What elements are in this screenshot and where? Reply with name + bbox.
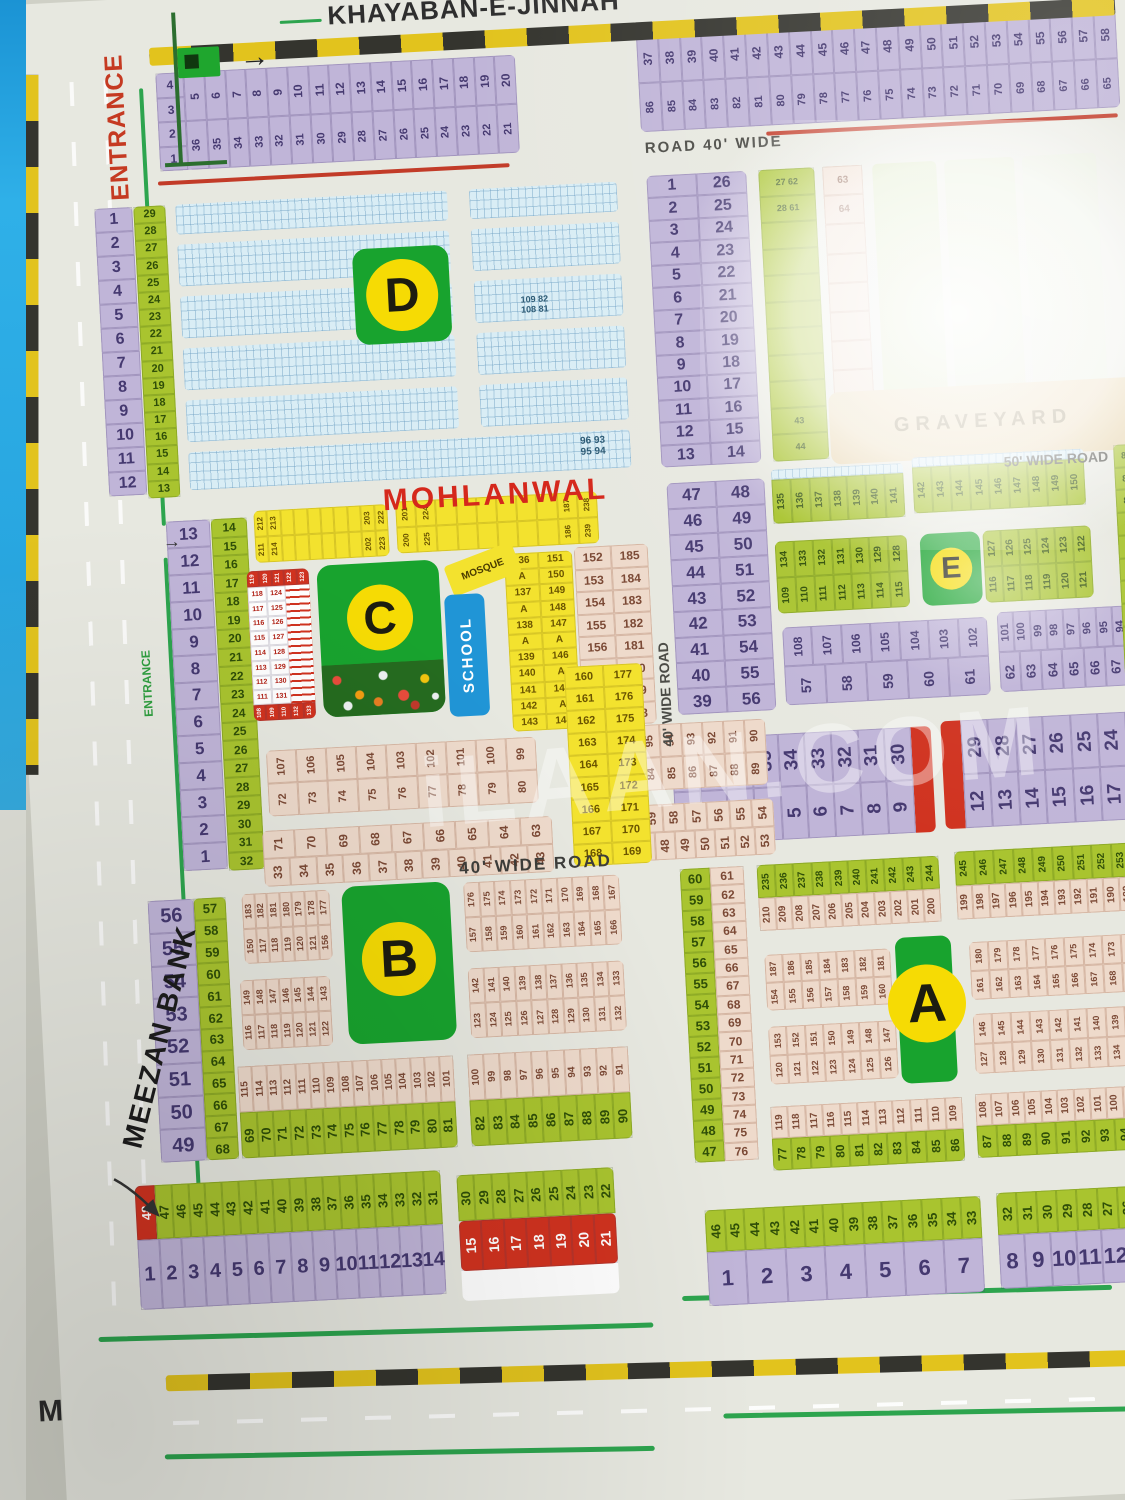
plot-number: 39: [679, 31, 703, 81]
plot-number: 63: [712, 903, 747, 923]
plot-number: 84: [906, 1131, 927, 1164]
plot-number: 7: [174, 681, 219, 710]
school-label: SCHOOL: [457, 617, 478, 694]
plot-number: 26: [1042, 715, 1072, 770]
plot-number: 121: [271, 570, 284, 587]
block-e-badge: E: [919, 531, 983, 606]
plot-number: 143: [931, 466, 952, 513]
plot-number: 4: [650, 241, 701, 266]
plot-number: 159: [856, 977, 875, 1006]
plot-number: 31: [423, 1170, 443, 1225]
d-plot-grid-row: [185, 386, 459, 442]
plot-number: 47: [694, 1140, 725, 1163]
d-plot-grid-row: [476, 325, 626, 375]
plot-number: 125: [1018, 528, 1038, 565]
plot-number: 25: [1070, 713, 1100, 768]
housing-scheme-map: ENTRANCE → KHAYABAN-E-JINNAH ROAD 4321 5…: [0, 0, 1125, 1500]
plot-number: 46: [668, 507, 718, 535]
plot-number: 3: [97, 255, 136, 281]
plot-number: 88: [1120, 580, 1125, 604]
plot-number: 49: [692, 1098, 723, 1121]
plot-number: 117: [805, 1104, 824, 1137]
plot-number: 3: [180, 788, 225, 817]
plot-number: 109: [266, 704, 279, 721]
plot-number: 129: [270, 659, 290, 675]
plot-number: 133: [608, 960, 625, 996]
plot-number: 210: [758, 897, 776, 931]
plot-number: 146: [973, 1013, 994, 1044]
plot-number: 242: [884, 858, 904, 892]
plot-number: 65: [1096, 58, 1120, 108]
plot-number: 60: [197, 962, 230, 985]
plot-number: 56: [706, 801, 730, 830]
plot-number: 115: [840, 1102, 859, 1135]
plot-number: 76: [856, 71, 880, 121]
b-block-top-left: 183182181180179178177 150117118119120121…: [241, 890, 333, 965]
plot-number: 145: [992, 1012, 1013, 1043]
plot-number: [281, 535, 296, 562]
plot-number: 48: [693, 1119, 724, 1142]
plot-number: 110: [927, 1098, 946, 1131]
plot-number: A: [542, 631, 577, 649]
plot-number: 86: [944, 1129, 965, 1162]
c-lower-left-upper: 10710610510410310210110099 7273747576777…: [266, 737, 539, 817]
d-right-plot-table: 1262253244235226217208199181017111612151…: [646, 171, 761, 468]
plot-number: 33: [248, 117, 271, 167]
plot-number: 6: [176, 708, 221, 737]
plot-number: 78: [813, 73, 837, 123]
plot-number: 10: [106, 423, 145, 449]
e-plot-table: 474846494550445143524253415440553956: [666, 478, 776, 715]
plot-number: 127: [982, 530, 1002, 567]
plot-number: 71: [262, 829, 296, 859]
plot-number: 16: [411, 59, 434, 109]
plot-number: 113: [251, 660, 271, 676]
plot-number: 238: [811, 861, 831, 895]
plot-number: 103: [928, 618, 959, 658]
plot-number: 63: [822, 165, 863, 196]
plot-number: 125: [861, 1050, 881, 1080]
plot-number: 108: [975, 1093, 993, 1126]
plot-number: 133: [303, 702, 316, 719]
plot-number: 18: [706, 350, 757, 375]
plot-number: 49: [717, 504, 767, 532]
plot-number: 45: [724, 1208, 746, 1251]
plot-number: 126: [879, 1049, 899, 1079]
plot-number: 29: [331, 112, 354, 162]
plot-number: 76: [387, 776, 419, 811]
plot-number: 92: [1075, 1120, 1096, 1153]
plot-number: 203: [360, 505, 375, 532]
plot-number: 208: [791, 896, 809, 930]
plot-number: 84: [1115, 489, 1125, 513]
plot-number: 108: [782, 626, 813, 666]
plot-number: 78: [791, 1137, 812, 1170]
plot-number: 51: [941, 17, 965, 67]
plot-number: 140: [866, 474, 887, 519]
plot-number: 92: [702, 721, 725, 755]
plot-number: 125: [267, 600, 287, 616]
plot-number: 187: [764, 954, 783, 983]
plot-number: 65: [203, 1071, 236, 1094]
plot-number: 201: [907, 889, 925, 923]
plot-number: 163: [1008, 968, 1028, 998]
plot-number: 60: [680, 868, 711, 891]
plot-number: 127: [532, 999, 549, 1035]
plot-number: 86: [682, 755, 705, 789]
plot-number: 184: [818, 951, 837, 980]
plot-number: 80: [829, 1135, 850, 1168]
plot-number: 107: [991, 1092, 1009, 1125]
plot-number: 2: [96, 231, 135, 257]
plot-number: 82: [469, 1100, 489, 1147]
plot-number: 27: [223, 758, 260, 778]
plot-number: 105: [326, 746, 358, 781]
plot-number: 72: [720, 1068, 755, 1088]
b-block-mid-right: 142141140139138137136135134133 123124125…: [468, 960, 627, 1038]
plot-number: 58: [662, 803, 686, 832]
plot-number: 117: [1002, 565, 1022, 602]
plot-number: 15: [212, 536, 249, 556]
plot-number: 42: [673, 610, 723, 638]
plot-number: 1: [707, 1250, 749, 1306]
plot-number: 21: [217, 647, 254, 667]
plot-number: A: [508, 633, 543, 651]
plot-number: 52: [735, 827, 756, 856]
plot-number: 34: [777, 733, 806, 787]
plot-number: 66: [1074, 59, 1098, 109]
plot-number: [766, 326, 823, 355]
plot-number: 91: [612, 1046, 630, 1093]
plot-number: 120: [1056, 562, 1076, 599]
plot-number: 16: [708, 395, 759, 420]
plot-number: 196: [1005, 882, 1023, 917]
plot-number: 82: [1113, 444, 1125, 468]
plot-number: 51: [690, 1056, 721, 1079]
plot-number: 21: [702, 283, 753, 308]
plot-number: 121: [1074, 561, 1094, 598]
plot-number: 8: [103, 375, 142, 401]
plot-number: 28: [224, 776, 261, 796]
plot-number: 193: [1054, 880, 1072, 915]
plot-number: 94: [1114, 1118, 1125, 1151]
plot-number: [308, 534, 323, 561]
plot-number: 79: [810, 1136, 831, 1169]
plot-number: 209: [775, 896, 793, 930]
plot-number: 96: [1079, 607, 1098, 648]
plot-number: 9: [887, 780, 916, 834]
plot-number: 5: [780, 785, 809, 839]
plot-number: 153: [768, 1026, 788, 1056]
plot-number: 112: [833, 574, 854, 611]
e-purple-strip-left: 108107106105104103102 5758596061: [782, 617, 991, 706]
plot-number: 155: [784, 981, 803, 1010]
plot-number: 212: [253, 510, 268, 537]
plot-number: 124: [266, 585, 286, 601]
plot-number: 161: [527, 913, 544, 949]
plot-number: 27: [372, 110, 395, 160]
block-d-badge: D: [352, 245, 453, 346]
plot-number: 41: [723, 29, 747, 79]
plot-number: 43: [771, 406, 828, 435]
plot-number: 164: [1027, 967, 1047, 997]
bottom-green-line-1: [98, 1322, 653, 1342]
plot-number: 16: [213, 554, 250, 574]
plot-number: 133: [1088, 1037, 1109, 1068]
plot-number: 32: [996, 1192, 1018, 1235]
plot-pair-row: 3956: [677, 684, 776, 715]
a-top-strip-right: 245246247248249250251252253254 199198197…: [954, 842, 1125, 920]
plot-number: 118: [788, 1105, 807, 1138]
plot-number: 31: [289, 115, 312, 165]
plot-number: 141: [483, 967, 500, 1003]
plot-number: 83: [1114, 466, 1125, 490]
plot-number: 152: [786, 1025, 806, 1055]
plot-number: 11: [658, 398, 709, 423]
plot-number: 24: [220, 702, 257, 722]
plot-number: 139: [509, 649, 544, 667]
plot-number: 119: [770, 1106, 789, 1139]
d-plot-grid-row: [183, 334, 457, 390]
plot-number: 29: [133, 205, 166, 224]
plot-number: 172: [609, 774, 649, 798]
plot-number: 154: [766, 982, 785, 1011]
plot-number: 17: [144, 411, 177, 430]
plot-number: 131: [831, 538, 852, 575]
plot-number: 40: [676, 661, 726, 689]
plot-number: 49: [675, 830, 696, 859]
plot-number: 64: [201, 1050, 234, 1073]
plot-number: 8: [173, 654, 218, 683]
plot-number: 125: [501, 1001, 518, 1037]
plot-number: 71: [719, 1049, 754, 1069]
plot-number: 15: [146, 445, 179, 464]
plot-number: 55: [725, 658, 775, 686]
plot-number: 30: [884, 727, 913, 781]
e-block-right: 127126125124123122 116117118119120121: [982, 525, 1094, 603]
plot-number: 69: [717, 1013, 752, 1033]
plot-number: 9: [104, 399, 143, 425]
plot-number: 33: [961, 1196, 983, 1239]
plot-number: 64: [1041, 649, 1064, 690]
plot-number: 52: [688, 1035, 719, 1058]
plot-number: 99: [1029, 610, 1048, 651]
plot-number: 41: [803, 1204, 825, 1247]
plot-number: 245: [954, 851, 975, 886]
plot-number: 64: [824, 194, 865, 225]
plot-number: 30: [1036, 1190, 1058, 1233]
graveyard-label: GRAVEYARD: [893, 405, 1072, 437]
plot-number: 16: [145, 428, 178, 447]
plot-number: 24: [1097, 712, 1125, 767]
plot-number: 158: [838, 978, 857, 1007]
plot-number: 158: [480, 916, 497, 952]
plot-number: 51: [715, 828, 736, 857]
plot-number: 182: [614, 611, 652, 635]
plot-number: [457, 523, 479, 550]
entrance-arrow: →: [239, 40, 271, 76]
plot-number: 174: [606, 729, 646, 753]
plot-number: [765, 300, 822, 329]
b-block-mid-left: 149148147146145144143 116117118119120121…: [240, 976, 334, 1051]
plot-number: 166: [571, 798, 611, 822]
plot-number: 239: [829, 860, 849, 894]
plot-number: [477, 522, 499, 549]
plot-number: 74: [900, 68, 924, 118]
plot-number: 62: [199, 1006, 232, 1029]
plot-number: 200: [396, 527, 418, 554]
plot-number: 149: [540, 583, 575, 601]
plot-number: 93: [681, 722, 704, 756]
plot-number: 170: [556, 877, 573, 913]
plot-number: 66: [1083, 647, 1106, 688]
plot-number: 57: [684, 802, 708, 831]
plot-number: 85: [661, 756, 684, 790]
plot-number: 117: [248, 601, 268, 617]
plot-number: 73: [298, 781, 330, 816]
plot-number: 149: [841, 1022, 861, 1052]
plot-number: 130: [578, 997, 595, 1033]
plot-number: 140: [1086, 1007, 1107, 1038]
a-block-1-right: 180179178177176175174173172171 161162163…: [969, 932, 1125, 1000]
plot-number: 66: [714, 958, 749, 978]
plot-number: 27: [1015, 716, 1045, 771]
plot-number: 171: [610, 796, 650, 820]
plot-number: 241: [866, 859, 886, 893]
plot-number: 160: [564, 665, 604, 689]
plot-number: 32: [269, 116, 292, 166]
plot-number: 18: [453, 57, 476, 107]
plot-number: 77: [417, 774, 449, 809]
plot-number: 56: [1050, 12, 1074, 62]
plot-number: 37: [636, 33, 660, 83]
plot-number: 122: [319, 1011, 334, 1047]
plot-number: 69: [326, 826, 360, 856]
plot-number: 57: [1072, 10, 1096, 60]
plot-number: [764, 273, 821, 302]
plot-number: 143: [1030, 1010, 1051, 1041]
plot-number: 162: [566, 709, 606, 733]
plot-number: 167: [603, 874, 620, 910]
plot-number: 20: [494, 55, 517, 105]
plot-number: 243: [902, 857, 922, 891]
plot-number: 176: [604, 685, 644, 709]
plot-number: 15: [1045, 769, 1075, 824]
plot-number: 186: [782, 953, 801, 982]
plot-number: 191: [1086, 878, 1104, 913]
plot-number: 148: [540, 599, 575, 617]
plot-number: 52: [721, 581, 771, 609]
plot-number: 150: [539, 567, 574, 585]
plot-number: 31: [227, 832, 264, 852]
d-plot-grid-row: [469, 182, 618, 220]
plot-number: 29: [225, 795, 262, 815]
plot-number: 251: [1071, 845, 1092, 880]
plot-number: 185: [611, 543, 649, 567]
plot-number: 163: [558, 912, 575, 948]
d-plot-grid-row: [474, 273, 624, 323]
plot-number: 124: [485, 1002, 502, 1038]
plot-number: 9: [656, 353, 707, 378]
plot-number: 42: [783, 1205, 805, 1248]
plot-number: 106: [841, 623, 872, 663]
plot-number: 71: [965, 65, 989, 115]
plot-number: 26: [393, 109, 416, 159]
plot-number: 130: [271, 674, 291, 690]
bottom-m-label: M: [37, 1394, 64, 1429]
plot-number: 80: [769, 75, 793, 125]
plot-number: 128: [888, 535, 909, 572]
flag-icon: [157, 10, 235, 173]
plot-number: 22: [218, 665, 255, 685]
plot-number: 58: [825, 662, 868, 703]
c-lower-left-lower: 717069686766656463 333435363738394041424…: [262, 816, 555, 887]
plot-number: 138: [507, 617, 542, 635]
plot-number: 145: [969, 464, 990, 511]
plot-number: 175: [1064, 936, 1084, 966]
plot-number: 139: [1105, 1006, 1125, 1037]
plot-number: [830, 311, 871, 342]
plot-number: 7: [653, 308, 704, 333]
plot-number: 146: [543, 647, 578, 665]
plot-number: 173: [510, 879, 527, 915]
plot-number: 59: [196, 941, 229, 964]
plot-number: 203: [874, 891, 892, 925]
plot-number: 139: [514, 965, 531, 1001]
plot-number: 162: [543, 913, 560, 949]
plot-number: 165: [589, 910, 606, 946]
plot-number: 136: [790, 478, 811, 523]
plot-number: 50: [691, 1077, 722, 1100]
plot-number: 175: [479, 881, 496, 917]
plot-number: 113: [852, 573, 873, 610]
plot-number: 104: [356, 744, 388, 779]
site-plan-photo: ENTRANCE → KHAYABAN-E-JINNAH ROAD 4321 5…: [0, 0, 1125, 1500]
plot-number: 74: [327, 779, 359, 814]
plot-number: 175: [605, 707, 645, 731]
plot-number: 174: [1083, 935, 1103, 965]
plot-number: 102: [416, 741, 448, 776]
plot-number: 82: [868, 1133, 889, 1166]
plot-number: 11: [107, 447, 146, 473]
plot-number: 40: [823, 1203, 845, 1246]
mosque-label: MOSQUE: [460, 556, 505, 582]
plot-number: 128: [269, 644, 289, 660]
plot-number: 65: [713, 939, 748, 959]
plot-number: 23: [455, 106, 478, 156]
plot-number: 246: [974, 850, 995, 885]
plot-number: 126: [268, 615, 288, 631]
plot-number: 53: [984, 15, 1008, 65]
plot-pair-row: 1314: [660, 440, 761, 468]
plot-number: 133: [793, 540, 814, 577]
d-plot-grid-row: [479, 377, 629, 427]
plot-number: [437, 524, 459, 551]
plot-number: 39: [842, 1202, 864, 1245]
plot-number: 64: [487, 818, 521, 848]
plot-number: 147: [541, 615, 576, 633]
plot-number: 115: [890, 571, 911, 608]
plot-number: [538, 519, 560, 546]
plot-number: 105: [870, 621, 901, 661]
plot-number: 14: [370, 61, 393, 111]
plot-number: 165: [1046, 966, 1066, 996]
plot-number: 14: [147, 462, 180, 481]
plot-number: [762, 247, 819, 276]
plot-number: 178: [1007, 939, 1027, 969]
plot-number: 182: [854, 949, 873, 978]
plot-number: 66: [204, 1093, 237, 1116]
